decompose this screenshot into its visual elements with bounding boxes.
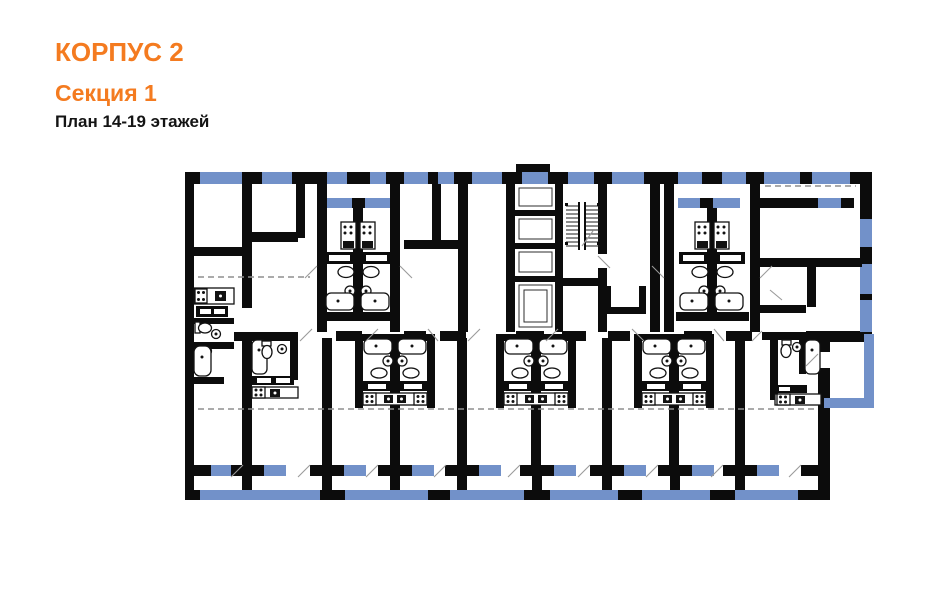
fixture-dark: [260, 389, 263, 392]
fixture-dark: [552, 345, 555, 348]
wall: [514, 276, 556, 282]
fixture-dot: [541, 398, 544, 401]
fixture-dark: [255, 389, 258, 392]
door-swing: [400, 266, 412, 278]
window-glazing: [692, 465, 714, 476]
fixture-dark: [363, 232, 366, 235]
fixture-dark: [645, 395, 648, 398]
fixture: [338, 267, 354, 278]
fixture-dark: [666, 360, 669, 363]
elevator-car: [519, 219, 552, 239]
window-glazing: [860, 264, 872, 294]
wall: [676, 312, 749, 321]
fixture-dark: [507, 395, 510, 398]
door-swing: [789, 465, 801, 477]
wall: [506, 184, 515, 332]
window-glazing: [262, 172, 292, 184]
fixture-dark: [558, 395, 561, 398]
fixture-dark: [366, 395, 369, 398]
fixture-dark: [645, 400, 648, 403]
wall: [524, 490, 550, 500]
wall: [378, 465, 412, 476]
fixture-dark: [784, 401, 787, 404]
wall-slot: [683, 384, 701, 389]
fixture-dot: [219, 295, 222, 298]
fixture: [512, 368, 528, 378]
fixture-dark: [779, 401, 782, 404]
wall-slot: [683, 255, 704, 261]
wall: [735, 338, 745, 465]
window-glazing: [522, 172, 548, 184]
wall: [242, 184, 252, 308]
window-glazing: [864, 334, 874, 406]
wall: [234, 332, 298, 341]
wall: [706, 334, 714, 408]
wall: [440, 331, 466, 341]
window-glazing: [404, 172, 428, 184]
fixture: [717, 267, 733, 278]
wall: [194, 377, 224, 384]
fixture-dark: [365, 290, 368, 293]
fixture: [363, 393, 376, 405]
wall-slot: [404, 384, 422, 389]
fixture-dark: [371, 395, 374, 398]
fixture-dark: [563, 395, 566, 398]
fixture-dark: [366, 400, 369, 403]
door-swing: [714, 329, 724, 341]
window-glazing: [568, 172, 594, 184]
wall: [445, 465, 479, 476]
wall: [457, 338, 467, 465]
fixture-dark: [696, 400, 699, 403]
fixture-dark: [369, 226, 372, 229]
wall: [760, 258, 862, 267]
door-swing: [770, 290, 782, 300]
wall-slot: [720, 255, 741, 261]
window-glazing: [327, 198, 352, 208]
wall: [634, 334, 642, 408]
fixture-dot: [799, 399, 802, 402]
fixture-dark: [512, 395, 515, 398]
fixture: [777, 394, 790, 405]
door-swing: [300, 329, 312, 341]
wall: [568, 334, 576, 408]
fixture-dark: [417, 395, 420, 398]
wall: [735, 476, 745, 490]
fixture: [781, 345, 791, 358]
fixture-dark: [201, 356, 204, 359]
wall: [565, 242, 568, 245]
wall: [252, 232, 298, 242]
wall: [230, 465, 264, 476]
fixture-dark: [202, 298, 205, 301]
wall: [514, 243, 556, 249]
fixture-dark: [716, 241, 727, 248]
door-swing: [598, 256, 610, 268]
plan-subtitle: План 14-19 этажей: [55, 112, 209, 132]
window-glazing: [757, 465, 779, 476]
fixture-dark: [650, 395, 653, 398]
window-glazing: [472, 172, 502, 184]
wall: [578, 202, 580, 250]
fixture: [680, 293, 708, 310]
wall-slot: [257, 378, 271, 383]
door-swing: [646, 465, 658, 477]
fixture-dark: [796, 346, 799, 349]
fixture-dark: [363, 226, 366, 229]
fixture-dark: [374, 300, 377, 303]
fixture-dark: [704, 226, 707, 229]
fixture-dark: [350, 226, 353, 229]
fixture-dark: [690, 345, 693, 348]
fixture-dark: [728, 300, 731, 303]
wall: [242, 338, 252, 465]
window-glazing: [554, 465, 576, 476]
wall: [700, 198, 713, 208]
wall: [427, 334, 435, 408]
wall: [355, 334, 363, 408]
wall: [618, 490, 642, 500]
fixture-dark: [362, 241, 373, 248]
fixture-dark: [202, 291, 205, 294]
fixture-dark: [281, 348, 284, 351]
fixture: [364, 339, 392, 354]
fixture: [805, 340, 820, 374]
window-glazing: [327, 172, 347, 184]
wall: [532, 476, 542, 490]
wall-slot: [276, 378, 290, 383]
wall: [432, 184, 441, 242]
fixture-dark: [516, 345, 519, 348]
fixture-dark: [375, 345, 378, 348]
wall: [807, 267, 816, 307]
fixture-dark: [401, 360, 404, 363]
fixture-dark: [542, 360, 545, 363]
fixture-dark: [696, 395, 699, 398]
fixture-dark: [255, 394, 258, 397]
fixture: [326, 293, 354, 310]
wall: [458, 184, 468, 332]
wall: [310, 465, 344, 476]
fixture-dark: [701, 400, 704, 403]
wall-slot: [366, 255, 387, 261]
window-glazing: [678, 172, 702, 184]
fixture-dot: [666, 398, 669, 401]
fixture-dark: [680, 360, 683, 363]
wall: [801, 465, 830, 476]
fixture-dot: [274, 392, 277, 395]
wall-slot: [368, 384, 386, 389]
page: КОРПУС 2 Секция 1 План 14-19 этажей: [0, 0, 941, 600]
fixture: [650, 368, 666, 378]
window-glazing: [764, 172, 800, 184]
fixture-dot: [400, 398, 403, 401]
fixture-dark: [387, 360, 390, 363]
wall: [514, 210, 556, 216]
door-swing: [434, 465, 446, 477]
wall: [404, 240, 460, 249]
wall: [798, 490, 830, 500]
window-glazing: [438, 172, 454, 184]
fixture-dark: [344, 226, 347, 229]
wall-slot: [214, 309, 225, 314]
window-glazing: [860, 300, 872, 332]
fixture: [682, 368, 698, 378]
door-swing: [298, 465, 310, 477]
wall: [760, 305, 806, 313]
window-glazing: [824, 398, 874, 408]
wall: [726, 331, 752, 341]
fixture-dark: [371, 400, 374, 403]
elevator-car: [524, 290, 547, 322]
plan-header: КОРПУС 2 Секция 1 План 14-19 этажей: [55, 38, 209, 131]
wall: [322, 338, 332, 465]
fixture: [252, 387, 265, 398]
wall: [352, 198, 365, 208]
wall: [670, 476, 680, 490]
fixture-dark: [528, 360, 531, 363]
fixture: [692, 267, 708, 278]
fixture-dark: [337, 300, 340, 303]
window-glazing: [365, 198, 390, 208]
wall: [322, 312, 392, 321]
fixture-dark: [698, 226, 701, 229]
fixture-dot: [679, 398, 682, 401]
wall-slot: [200, 309, 211, 314]
wall: [496, 334, 504, 408]
window-glazing: [370, 172, 386, 184]
fixture-dark: [698, 232, 701, 235]
wall: [608, 331, 630, 341]
fixture: [199, 323, 212, 333]
fixture-dark: [512, 400, 515, 403]
door-swing: [578, 465, 590, 477]
fixture: [693, 393, 706, 405]
wall-slot: [329, 255, 350, 261]
fixture-dark: [779, 396, 782, 399]
wall: [664, 184, 674, 332]
fixture-dark: [654, 345, 657, 348]
window-glazing: [412, 465, 434, 476]
fixture-dot: [387, 398, 390, 401]
fixture-dark: [697, 241, 708, 248]
wall: [597, 242, 600, 245]
wall: [597, 203, 600, 206]
section-title: Секция 1: [55, 81, 209, 106]
wall: [602, 338, 612, 465]
wall: [590, 465, 624, 476]
fixture-dark: [422, 395, 425, 398]
window-glazing: [264, 465, 286, 476]
wall: [639, 286, 646, 314]
fixture-dark: [369, 232, 372, 235]
fixture-dark: [811, 349, 814, 352]
wall: [563, 278, 607, 286]
window-glazing: [812, 172, 850, 184]
fixture-dark: [691, 300, 694, 303]
fixture-dark: [703, 290, 706, 293]
fixture-dark: [784, 396, 787, 399]
window-glazing: [678, 198, 700, 208]
fixture-dark: [507, 400, 510, 403]
wall: [290, 334, 298, 380]
fixture: [371, 368, 387, 378]
wall: [841, 198, 854, 208]
fixture: [403, 368, 419, 378]
wall-slot: [779, 387, 790, 391]
fixture-dark: [411, 345, 414, 348]
wall-slot: [647, 384, 665, 389]
window-glazing: [612, 172, 644, 184]
wall: [565, 203, 568, 206]
window-glazing: [722, 172, 746, 184]
window-glazing: [713, 198, 740, 208]
fixture: [414, 393, 427, 405]
wall: [457, 476, 467, 490]
fixture-dark: [558, 400, 561, 403]
wall: [390, 476, 400, 490]
wall: [242, 476, 252, 490]
elevator-car: [519, 188, 552, 206]
fixture-dark: [650, 400, 653, 403]
wall: [296, 184, 305, 238]
door-swing: [760, 266, 772, 278]
fixture-dark: [704, 232, 707, 235]
window-glazing: [860, 219, 872, 247]
fixture-dark: [258, 349, 261, 352]
wall: [428, 490, 450, 500]
door-swing: [366, 465, 378, 477]
wall: [710, 490, 735, 500]
fixture: [544, 368, 560, 378]
wall: [320, 490, 345, 500]
fixture-dark: [260, 394, 263, 397]
wall: [520, 465, 554, 476]
fixture-dark: [343, 241, 354, 248]
window-glazing: [344, 465, 366, 476]
fixture: [555, 393, 568, 405]
fixture: [504, 393, 517, 405]
fixture-dark: [719, 290, 722, 293]
wall: [762, 332, 822, 340]
window-glazing: [211, 465, 231, 476]
wall: [322, 476, 332, 490]
fixture-dark: [723, 226, 726, 229]
fixture-dark: [349, 290, 352, 293]
fixture: [505, 339, 533, 354]
wall: [723, 465, 757, 476]
elevator-car: [519, 252, 552, 272]
wall: [760, 198, 818, 208]
wall: [602, 476, 612, 490]
fixture-dark: [723, 232, 726, 235]
fixture: [195, 289, 207, 303]
door-swing: [468, 329, 480, 341]
wall: [650, 184, 660, 332]
wall: [194, 247, 244, 256]
fixture-dark: [197, 298, 200, 301]
door-swing: [508, 465, 520, 477]
fixture-dark: [350, 232, 353, 235]
window-glazing: [818, 198, 841, 208]
building-title: КОРПУС 2: [55, 38, 209, 67]
fixture: [262, 346, 272, 359]
fixture-dark: [422, 400, 425, 403]
wall: [658, 465, 692, 476]
fixture: [194, 346, 211, 376]
wall-slot: [509, 384, 527, 389]
fixture: [643, 339, 671, 354]
fixture-dark: [717, 232, 720, 235]
wall: [516, 164, 550, 173]
fixture: [363, 267, 379, 278]
fixture-dark: [215, 333, 218, 336]
fixture-dark: [344, 232, 347, 235]
window-glazing: [200, 172, 242, 184]
fixture-dark: [197, 291, 200, 294]
wall: [185, 490, 200, 500]
wall: [185, 172, 194, 500]
fixture-dot: [528, 398, 531, 401]
fixture-dark: [417, 400, 420, 403]
fixture-dark: [717, 226, 720, 229]
fixture-dark: [701, 395, 704, 398]
wall: [555, 184, 563, 332]
door-swing: [752, 331, 762, 341]
wall: [390, 184, 400, 332]
door-swing: [305, 266, 317, 278]
wall: [750, 184, 760, 332]
fixture: [642, 393, 655, 405]
wall-slot: [545, 384, 563, 389]
wall: [185, 465, 211, 476]
window-glazing: [624, 465, 646, 476]
fixture-dark: [563, 400, 566, 403]
window-glazing: [479, 465, 501, 476]
